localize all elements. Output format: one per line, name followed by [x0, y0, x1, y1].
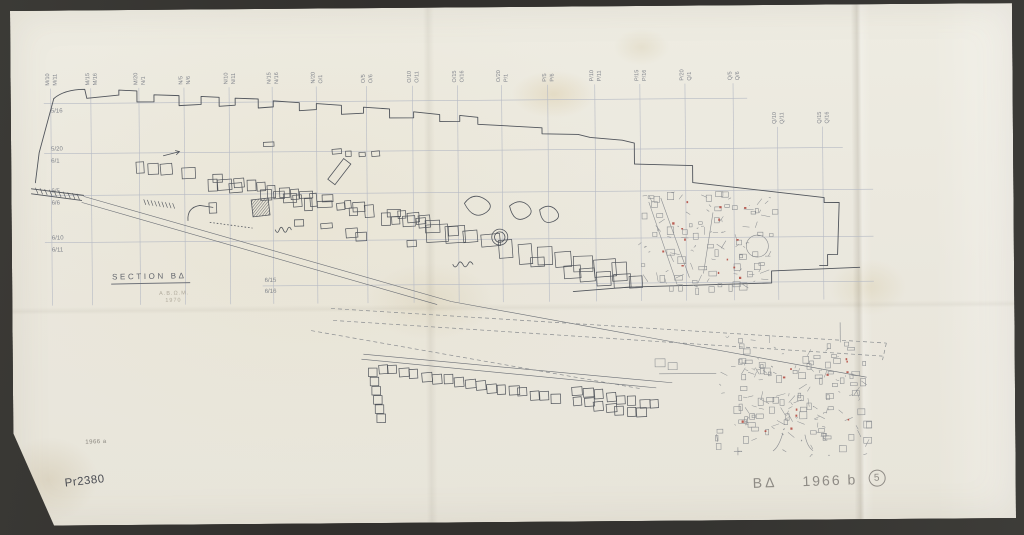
- svg-text:O/10: O/10: [407, 71, 413, 83]
- svg-text:Q/16: Q/16: [824, 112, 830, 124]
- svg-text:P/6: P/6: [550, 73, 556, 81]
- svg-text:Q/10: Q/10: [772, 112, 778, 124]
- dotted-line: [210, 222, 252, 228]
- scalloped-mark: [453, 262, 473, 267]
- svg-text:Q/1: Q/1: [687, 72, 693, 81]
- svg-text:N/5: N/5: [178, 76, 184, 85]
- plan-features: [163, 148, 559, 270]
- svg-text:N/10: N/10: [223, 73, 229, 85]
- svg-text:N/15: N/15: [266, 72, 272, 84]
- year-label: 1966 b: [802, 471, 857, 489]
- svg-text:N/16: N/16: [274, 72, 280, 84]
- svg-text:P/20: P/20: [679, 69, 685, 80]
- wall-slab: [328, 159, 351, 185]
- circled-number: 5: [868, 469, 886, 487]
- svg-text:N/1: N/1: [141, 76, 147, 85]
- pit-outline: [464, 196, 490, 215]
- svg-text:Q/15: Q/15: [817, 112, 823, 124]
- svg-text:M/11: M/11: [53, 74, 59, 86]
- hatched-structure: [251, 198, 270, 217]
- svg-text:6/16: 6/16: [265, 289, 277, 295]
- svg-text:6/10: 6/10: [52, 236, 64, 242]
- scalloped-mark: [275, 227, 291, 232]
- svg-text:P/5: P/5: [542, 73, 548, 81]
- pencil-year-note: 1966 a: [85, 439, 107, 446]
- site-code: ΒΔ: [752, 474, 777, 491]
- svg-text:P/1: P/1: [503, 74, 509, 82]
- svg-text:O/6: O/6: [368, 74, 374, 83]
- svg-text:Q/6: Q/6: [735, 71, 741, 80]
- svg-text:6/15: 6/15: [265, 278, 277, 284]
- pencil-scale-note: Α.Β.Ω.Μ. 1970: [159, 290, 190, 305]
- site-plan-drawing: M/10M/11M/15M/16M/20N/1N/5N/6N/10N/11N/1…: [10, 3, 1016, 526]
- north-arrow: [163, 151, 179, 156]
- svg-text:P/15: P/15: [634, 70, 640, 81]
- svg-text:M/20: M/20: [133, 73, 139, 85]
- svg-text:O/5: O/5: [361, 74, 367, 83]
- svg-text:5/20: 5/20: [51, 147, 63, 153]
- svg-text:O/20: O/20: [496, 70, 502, 82]
- survey-grid: M/10M/11M/15M/16M/20N/1N/5N/6N/10N/11N/1…: [44, 67, 874, 306]
- drawing-sheet: M/10M/11M/15M/16M/20N/1N/5N/6N/10N/11N/1…: [10, 3, 1016, 526]
- svg-text:P/10: P/10: [589, 70, 595, 81]
- svg-text:O/1: O/1: [318, 75, 324, 84]
- svg-text:N/11: N/11: [231, 73, 237, 84]
- svg-text:O/16: O/16: [459, 70, 465, 82]
- svg-text:O/11: O/11: [414, 71, 420, 83]
- svg-text:N/6: N/6: [186, 76, 192, 85]
- photo-mat: { "document": { "section_title": "SECTIO…: [0, 0, 1024, 535]
- section-title: SECTION ΒΔ: [111, 271, 191, 284]
- svg-text:O/15: O/15: [452, 71, 458, 83]
- road-lines: [82, 190, 867, 392]
- svg-text:M/16: M/16: [93, 73, 99, 85]
- svg-text:Q/11: Q/11: [779, 112, 785, 124]
- svg-text:Q/5: Q/5: [727, 71, 733, 80]
- svg-text:5/16: 5/16: [51, 109, 63, 115]
- svg-text:P/16: P/16: [642, 70, 648, 81]
- svg-text:6/1: 6/1: [51, 159, 60, 165]
- pencil-note-line2: 1970: [159, 297, 189, 305]
- svg-text:N/20: N/20: [311, 72, 317, 84]
- pit-outline: [510, 202, 532, 220]
- svg-text:M/10: M/10: [45, 73, 51, 85]
- svg-text:6/6: 6/6: [52, 201, 61, 207]
- svg-text:M/15: M/15: [85, 73, 91, 85]
- pit-outline: [540, 206, 559, 222]
- svg-text:P/11: P/11: [597, 70, 603, 81]
- svg-text:6/11: 6/11: [52, 248, 64, 254]
